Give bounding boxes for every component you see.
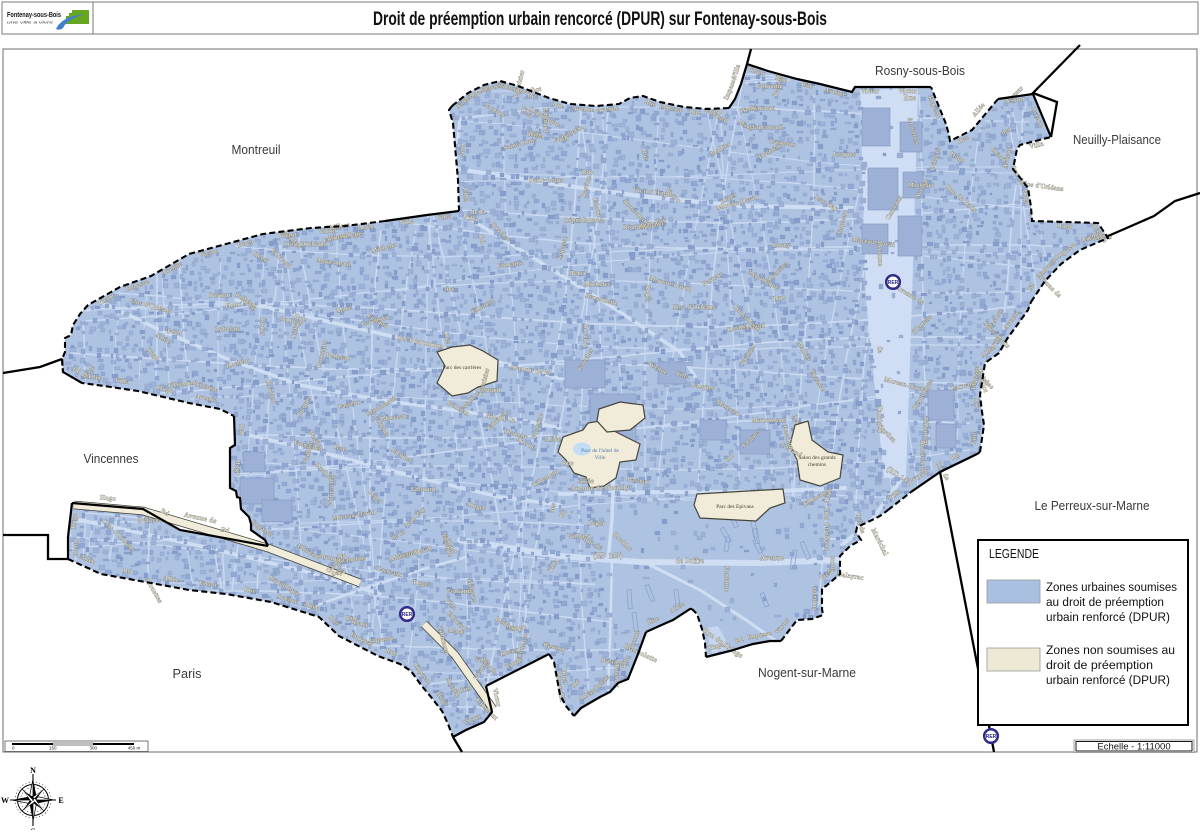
svg-text:Fontenay-sous-Bois: Fontenay-sous-Bois	[7, 10, 61, 19]
svg-text:au droit de préemption: au droit de préemption	[1046, 595, 1164, 609]
svg-text:150: 150	[49, 746, 57, 751]
svg-text:Hugo: Hugo	[100, 494, 117, 502]
svg-text:Clos d'Orléans: Clos d'Orléans	[823, 507, 830, 551]
svg-text:des: des	[445, 286, 455, 293]
svg-text:Ville: Ville	[595, 455, 606, 461]
svg-text:Bd: Bd	[123, 567, 133, 575]
svg-text:droit de préemption: droit de préemption	[1046, 658, 1153, 672]
svg-text:Rue: Rue	[972, 398, 980, 410]
svg-text:Bd: Bd	[221, 526, 231, 534]
svg-text:Hugo: Hugo	[1057, 223, 1073, 231]
svg-text:Rosny-sous-Bois: Rosny-sous-Bois	[875, 63, 965, 78]
svg-text:République: République	[564, 217, 598, 224]
svg-text:Mauconseil: Mauconseil	[749, 124, 783, 131]
svg-text:Saint-Louis: Saint-Louis	[529, 177, 564, 184]
svg-text:450 m: 450 m	[128, 746, 141, 751]
svg-text:Avenue de Neuilly: Avenue de Neuilly	[570, 483, 629, 492]
svg-text:Rue: Rue	[582, 169, 594, 176]
svg-text:Roger: Roger	[259, 318, 266, 336]
svg-text:Neuilly-Plaisance: Neuilly-Plaisance	[1073, 132, 1161, 147]
svg-text:Montreuil: Montreuil	[232, 142, 281, 157]
svg-text:Zones non soumises au: Zones non soumises au	[1046, 643, 1175, 657]
svg-text:RER: RER	[402, 612, 413, 618]
svg-text:chemins: chemins	[808, 462, 826, 468]
svg-text:Allée: Allée	[545, 436, 561, 443]
svg-text:LEGENDE: LEGENDE	[989, 546, 1039, 561]
svg-text:urbain renforcé (DPUR): urbain renforcé (DPUR)	[1046, 673, 1170, 687]
svg-text:Tassigny: Tassigny	[875, 406, 884, 434]
svg-text:Impasse: Impasse	[811, 586, 818, 610]
svg-text:Rue: Rue	[238, 424, 245, 436]
svg-text:urbain renforcé (DPUR): urbain renforcé (DPUR)	[1046, 610, 1170, 624]
svg-text:Clos d'Orléans: Clos d'Orléans	[672, 304, 716, 311]
svg-text:Mauconseil: Mauconseil	[752, 417, 786, 424]
svg-text:Rabelais: Rabelais	[215, 326, 241, 333]
svg-text:Le Perreux-sur-Marne: Le Perreux-sur-Marne	[1035, 498, 1150, 513]
svg-text:Parc de l'hôtel de: Parc de l'hôtel de	[581, 448, 619, 454]
svg-text:300: 300	[90, 746, 98, 751]
svg-text:Rue: Rue	[904, 94, 916, 102]
svg-text:Avenue: Avenue	[875, 243, 884, 267]
svg-text:Michelet: Michelet	[584, 281, 610, 288]
svg-text:Vincennes: Vincennes	[84, 451, 139, 466]
svg-text:de Joffre: de Joffre	[676, 557, 704, 565]
svg-text:de la: de la	[471, 209, 485, 216]
svg-text:Pasteur: Pasteur	[209, 292, 231, 299]
svg-text:Droit de préemption urbain ren: Droit de préemption urbain rencorcé (DPU…	[373, 8, 827, 30]
svg-text:Hugo: Hugo	[234, 460, 241, 476]
svg-text:Carreaux: Carreaux	[328, 474, 335, 501]
svg-text:Rue: Rue	[346, 615, 358, 622]
svg-text:Parc des carrières: Parc des carrières	[443, 365, 482, 371]
svg-text:Avenue: Avenue	[760, 554, 784, 562]
svg-text:RER: RER	[888, 280, 899, 286]
svg-text:E: E	[58, 796, 63, 805]
svg-text:Victor: Victor	[318, 227, 337, 235]
svg-text:Boschot: Boschot	[582, 324, 589, 348]
svg-text:Rosny: Rosny	[772, 242, 791, 249]
svg-text:de: de	[876, 346, 884, 354]
svg-text:Victor: Victor	[829, 555, 836, 574]
svg-text:W: W	[1, 796, 9, 805]
svg-text:Echelle - 1:11000: Echelle - 1:11000	[1097, 742, 1170, 753]
svg-text:Clos d'Orléans: Clos d'Orléans	[283, 241, 327, 248]
svg-text:Roger: Roger	[644, 285, 651, 303]
svg-text:Henri: Henri	[569, 270, 586, 277]
svg-text:Parc des Epivans: Parc des Epivans	[716, 504, 754, 510]
svg-text:Bd: Bd	[714, 109, 723, 116]
svg-text:N: N	[30, 766, 36, 775]
svg-text:Nogent-sur-Marne: Nogent-sur-Marne	[758, 665, 856, 680]
svg-text:Villa: Villa	[462, 188, 470, 203]
svg-text:Jacques: Jacques	[833, 151, 856, 158]
svg-text:(RD 143): (RD 143)	[593, 552, 623, 560]
svg-text:RER: RER	[986, 734, 997, 740]
svg-text:Victor: Victor	[861, 88, 880, 95]
svg-text:Rue: Rue	[458, 145, 466, 157]
svg-text:Salon des grands: Salon des grands	[798, 455, 835, 461]
svg-text:Fontaine: Fontaine	[723, 566, 730, 592]
svg-text:Zones urbaines soumises: Zones urbaines soumises	[1046, 580, 1177, 594]
svg-text:Edouard: Edouard	[542, 108, 549, 133]
svg-text:Fontaine: Fontaine	[757, 83, 783, 90]
svg-text:Léger: Léger	[588, 520, 606, 527]
svg-text:Rue: Rue	[689, 109, 701, 117]
svg-text:Rue: Rue	[562, 460, 574, 467]
svg-text:Paris: Paris	[173, 666, 202, 681]
svg-text:une ville à vivre: une ville à vivre	[7, 21, 53, 25]
svg-text:Victor: Victor	[72, 539, 79, 558]
svg-text:Edouard: Edouard	[411, 486, 436, 493]
